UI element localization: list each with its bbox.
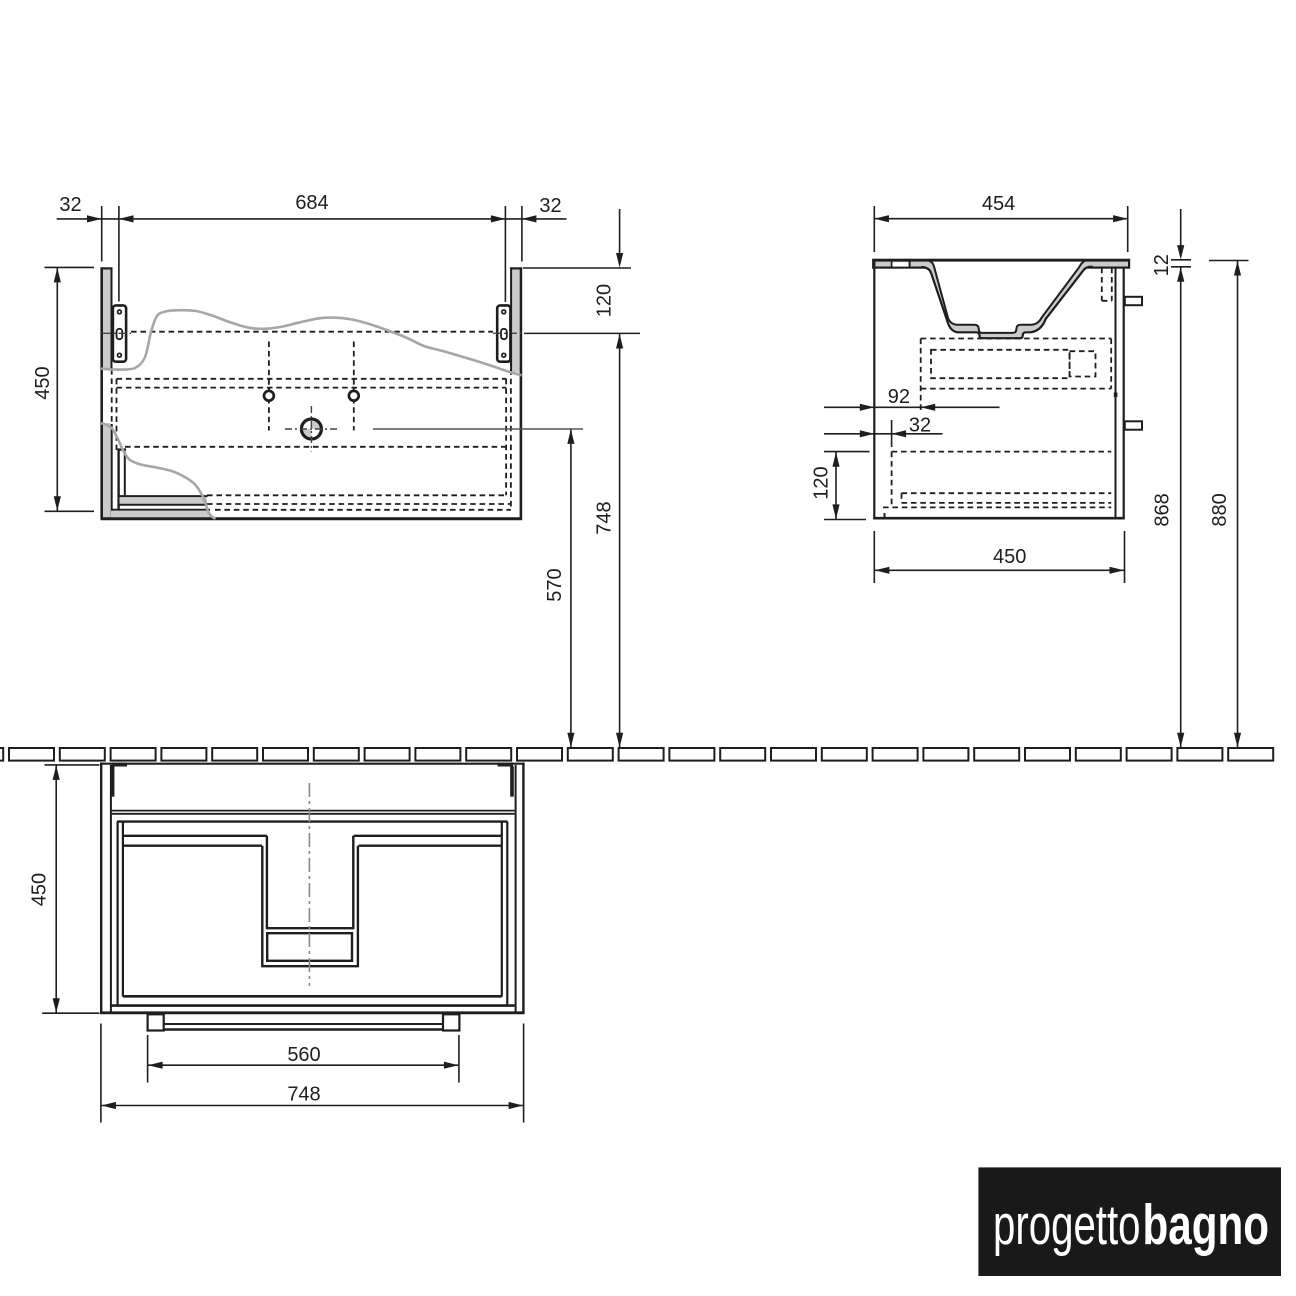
svg-text:748: 748 [287,1084,320,1106]
svg-text:450: 450 [993,546,1026,568]
svg-text:32: 32 [539,195,561,217]
svg-text:748: 748 [593,501,615,534]
svg-text:12: 12 [1151,254,1173,276]
svg-text:120: 120 [593,284,615,317]
svg-text:560: 560 [287,1044,320,1066]
svg-text:progetto: progetto [993,1193,1141,1257]
svg-text:92: 92 [888,386,910,408]
svg-text:454: 454 [982,193,1015,215]
svg-text:bagno: bagno [1143,1193,1270,1257]
svg-text:684: 684 [295,192,328,214]
svg-text:570: 570 [544,568,566,601]
svg-text:450: 450 [29,873,51,906]
svg-text:120: 120 [811,466,833,499]
svg-text:32: 32 [59,194,81,216]
svg-text:868: 868 [1152,493,1174,526]
svg-text:880: 880 [1209,493,1231,526]
svg-text:450: 450 [32,366,54,399]
